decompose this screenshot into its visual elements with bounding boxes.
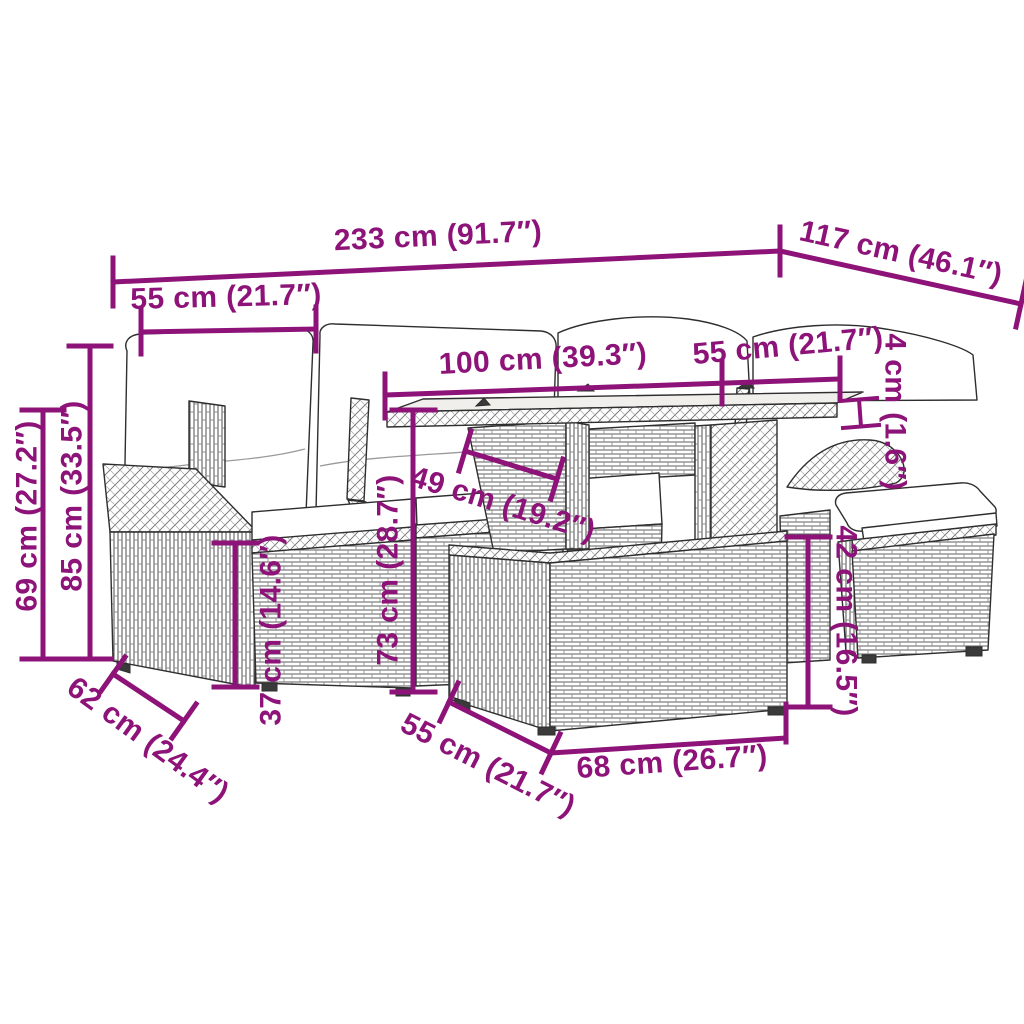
ottoman-foot [768, 707, 784, 715]
dim-label-backrest-height: 85 cm (33.5″) [56, 400, 89, 591]
dim-label-ottoman-height: 42 cm (16.5″) [830, 525, 863, 716]
dim-label-armrest-height: 69 cm (27.2″) [11, 420, 44, 611]
ottoman-foot [538, 727, 555, 735]
dim-label-left-module-width: 55 cm (21.7″) [130, 278, 322, 316]
dim-label-table-height: 73 cm (28.7″) [372, 474, 405, 665]
stool-base [852, 534, 994, 658]
dim-tick [101, 657, 125, 691]
dim-label-tabletop-thickness: 4 cm (1.6″) [879, 333, 912, 490]
furniture-set-diagram: 233 cm (91.7″) 117 cm (46.1″) 55 cm (21.… [0, 0, 1024, 1024]
dim-line [141, 329, 316, 332]
dimension-total-depth: 117 cm (46.1″) [780, 215, 1024, 327]
dim-label-seat-height: 37 cm (14.6″) [255, 534, 288, 725]
dim-label-total-width: 233 cm (91.7″) [333, 215, 543, 257]
dim-line [113, 251, 780, 282]
dim-tick [172, 704, 196, 738]
stool-foot [966, 647, 982, 656]
ottoman-front-face [550, 541, 787, 731]
dim-label-module-depth: 62 cm (24.4″) [61, 670, 235, 809]
dim-label-ottoman-width: 68 cm (26.7″) [575, 739, 768, 785]
dimension-backrest-height: 85 cm (33.5″) [56, 346, 112, 659]
dim-bracket [841, 398, 879, 428]
product-dimension-diagram: 233 cm (91.7″) 117 cm (46.1″) 55 cm (21.… [0, 0, 1024, 1024]
stool-foot [862, 655, 876, 663]
bench-backrest-sliver [589, 423, 695, 481]
